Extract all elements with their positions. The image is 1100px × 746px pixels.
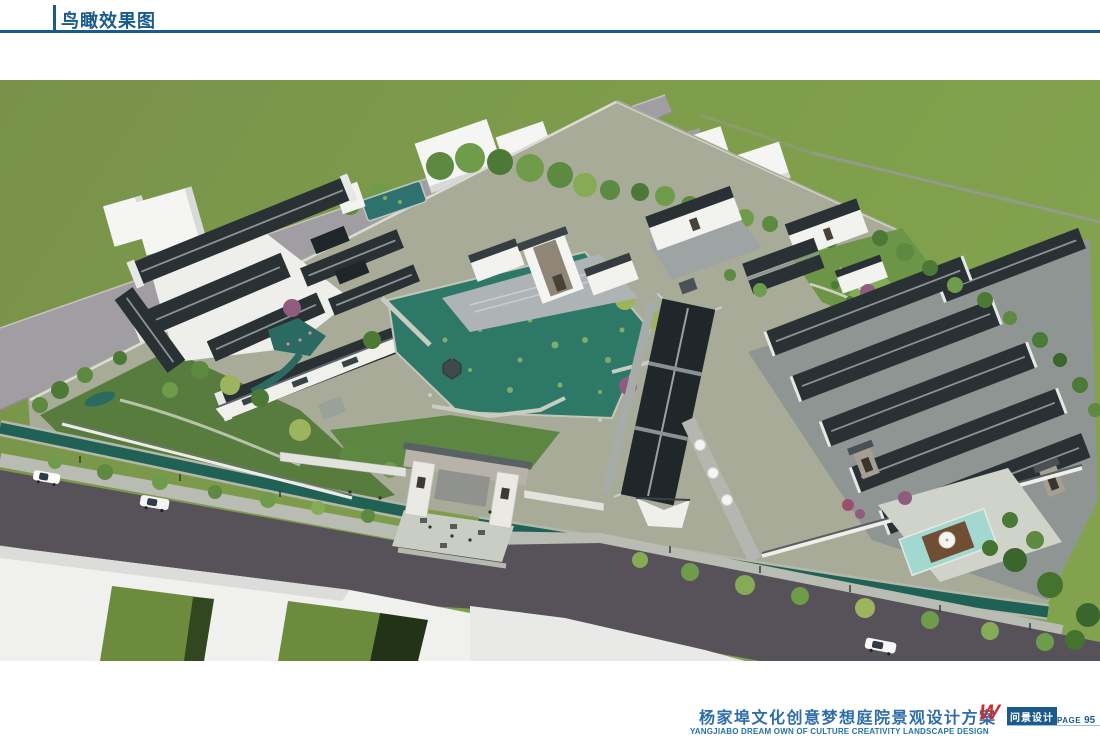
umbrella <box>708 468 719 479</box>
footer-underline <box>1007 725 1100 726</box>
project-title-en: YANGJIABO DREAM OWN OF CULTURE CREATIVIT… <box>690 727 982 736</box>
umbrella <box>695 440 706 451</box>
presentation-page: 鸟瞰效果图 <box>0 0 1100 746</box>
header-rule <box>0 30 1100 33</box>
project-title-cn: 杨家埠文化创意梦想庭院景观设计方案 <box>699 704 997 728</box>
logo-badge: 问景设计 <box>1007 707 1057 726</box>
header-accent-bar <box>53 5 56 32</box>
aerial-rendering <box>0 80 1100 661</box>
aerial-rendering-figure <box>0 80 1100 661</box>
page-label: PAGE <box>1057 716 1081 725</box>
umbrella <box>722 495 733 506</box>
logo-w-mark: W <box>977 701 1000 725</box>
